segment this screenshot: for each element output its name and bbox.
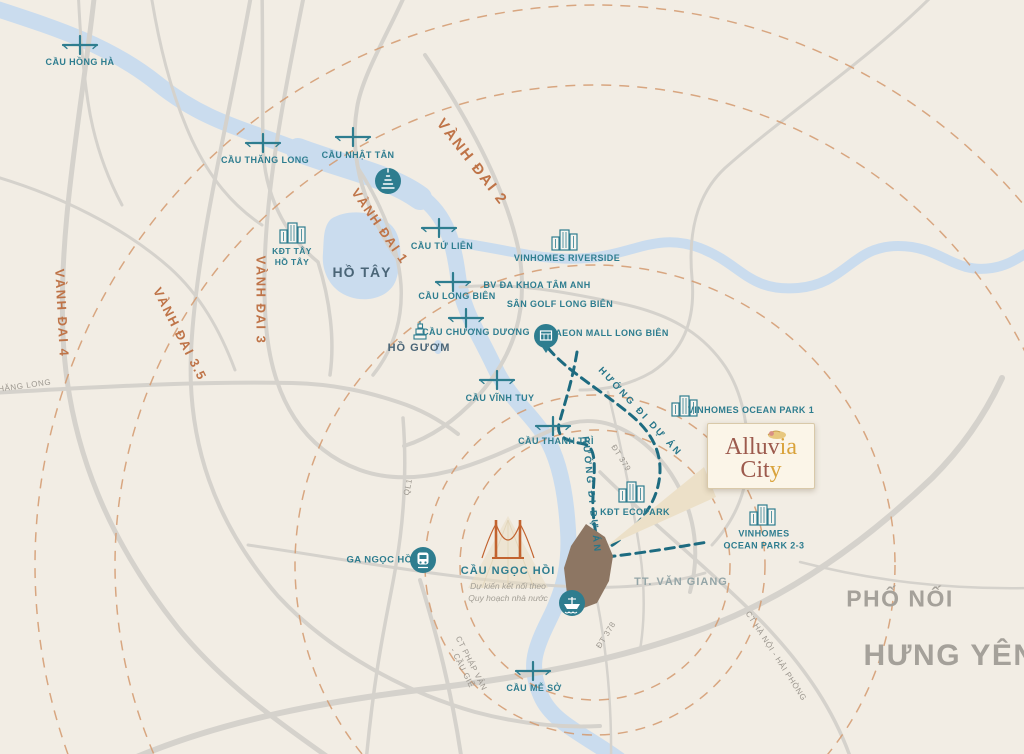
ring-road-label-3: VÀNH ĐAI 3 — [254, 256, 269, 345]
landmark-label-bv-tam-anh: BV ĐA KHOA TÂM ANH — [483, 280, 590, 290]
area-label-van-giang: TT. VĂN GIANG — [634, 576, 728, 588]
vinhomes-op23-line1: VINHOMES — [724, 528, 805, 540]
pagoda-icon — [375, 168, 401, 194]
future-bridge-label: CẦU NGỌC HỒI — [461, 565, 556, 577]
kdt-tay-ho-tay-line2: HỒ TÂY — [272, 257, 312, 268]
area-label-ho-tay: HỒ TÂY — [333, 264, 392, 280]
vinhomes-op23-line2: OCEAN PARK 2-3 — [724, 540, 805, 552]
bridge-label-thang-long: CẦU THĂNG LONG — [221, 155, 309, 165]
project-name-part4: y — [770, 457, 782, 483]
bridge-label-tu-lien: CẦU TỨ LIÊN — [411, 241, 473, 251]
port-ship-icon — [559, 590, 585, 616]
future-bridge-note-2: Quy hoạch nhà nước — [468, 593, 548, 603]
landmark-label-vinhomes-op1: VINHOMES OCEAN PARK 1 — [688, 405, 814, 415]
bridge-glow — [468, 516, 548, 588]
landmark-label-aeon-mall: AEON MALL LONG BIÊN — [555, 328, 668, 338]
bird-icon — [766, 428, 788, 441]
landmark-label-vinhomes-op23: VINHOMES OCEAN PARK 2-3 — [724, 528, 805, 551]
bridge-label-me-so: CẦU MỄ SỞ — [506, 683, 561, 693]
bridge-label-nhat-tan: CẦU NHẬT TÂN — [322, 150, 395, 160]
area-label-ho-guom: HỒ GƯƠM — [388, 342, 451, 354]
project-name-line1: Alluvia — [708, 435, 814, 459]
bridge-label-vinh-tuy: CẦU VĨNH TUY — [466, 393, 535, 403]
project-name-line2: City — [708, 458, 814, 482]
landmark-label-ga-ngoc-hoi: GA NGỌC HỒI — [347, 555, 416, 566]
kdt-tay-ho-tay-line1: KĐT TÂY — [272, 246, 312, 257]
area-label-pho-noi: PHỐ NỐI — [846, 586, 954, 613]
project-badge: Alluvia City — [707, 423, 815, 489]
area-label-hung-yen: HƯNG YÊN — [863, 639, 1024, 673]
project-name-part3: Cit — [740, 457, 769, 483]
location-map: CẦU HỒNG HÀ CẦU THĂNG LONG CẦU NHẬT TÂN … — [0, 0, 1024, 754]
future-bridge-note-1: Dự kiến kết nối theo — [470, 581, 546, 591]
bridge-label-chuong-duong: CẦU CHƯƠNG DƯƠNG — [422, 327, 530, 337]
landmark-label-kdt-tay-ho-tay: KĐT TÂY HỒ TÂY — [272, 246, 312, 268]
landmark-label-san-golf: SÂN GOLF LONG BIÊN — [507, 299, 613, 309]
bridge-label-hong-ha: CẦU HỒNG HÀ — [46, 57, 115, 67]
landmark-label-kdt-ecopark: KĐT ECOPARK — [600, 507, 670, 517]
landmark-label-vinhomes-riverside: VINHOMES RIVERSIDE — [514, 253, 620, 263]
bridge-label-long-bien: CẦU LONG BIÊN — [418, 291, 495, 301]
